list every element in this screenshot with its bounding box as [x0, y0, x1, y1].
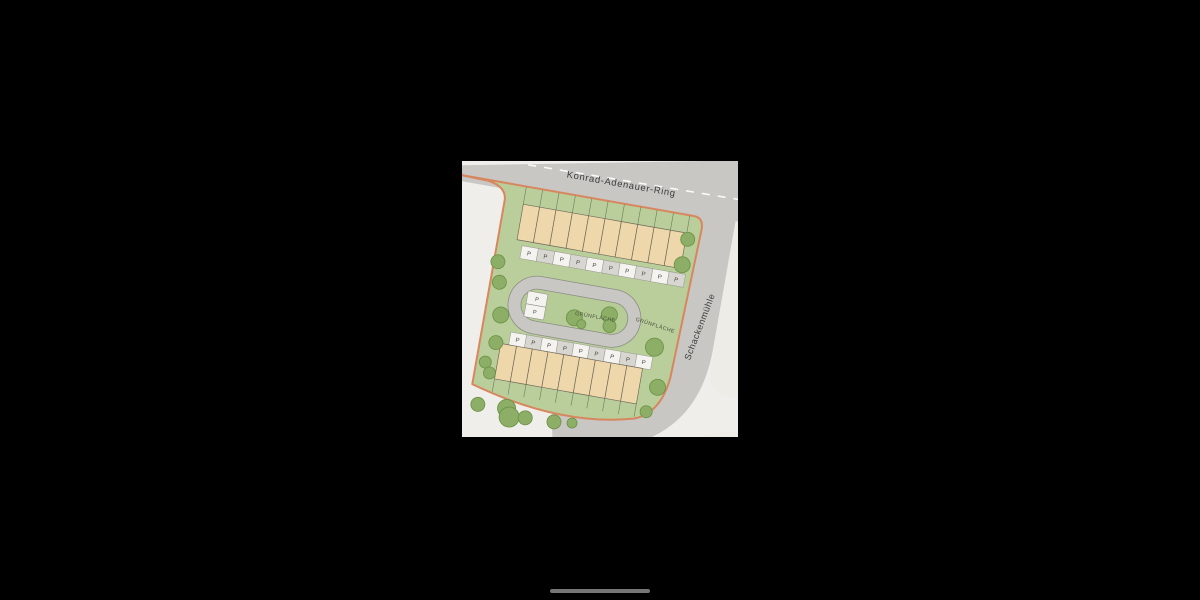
site-plan-image[interactable]: PPPPPPPPPP PP PPPPPPPPP GRÜNFLÄCHE — [462, 161, 738, 437]
phone-screenshot-viewport: PPPPPPPPPP PP PPPPPPPPP GRÜNFLÄCHE — [462, 0, 738, 600]
home-indicator[interactable] — [550, 589, 650, 593]
letterbox-background: PPPPPPPPPP PP PPPPPPPPP GRÜNFLÄCHE — [0, 0, 1200, 600]
site-plan-svg: PPPPPPPPPP PP PPPPPPPPP GRÜNFLÄCHE — [462, 161, 738, 437]
island-parking: PP — [524, 291, 548, 320]
